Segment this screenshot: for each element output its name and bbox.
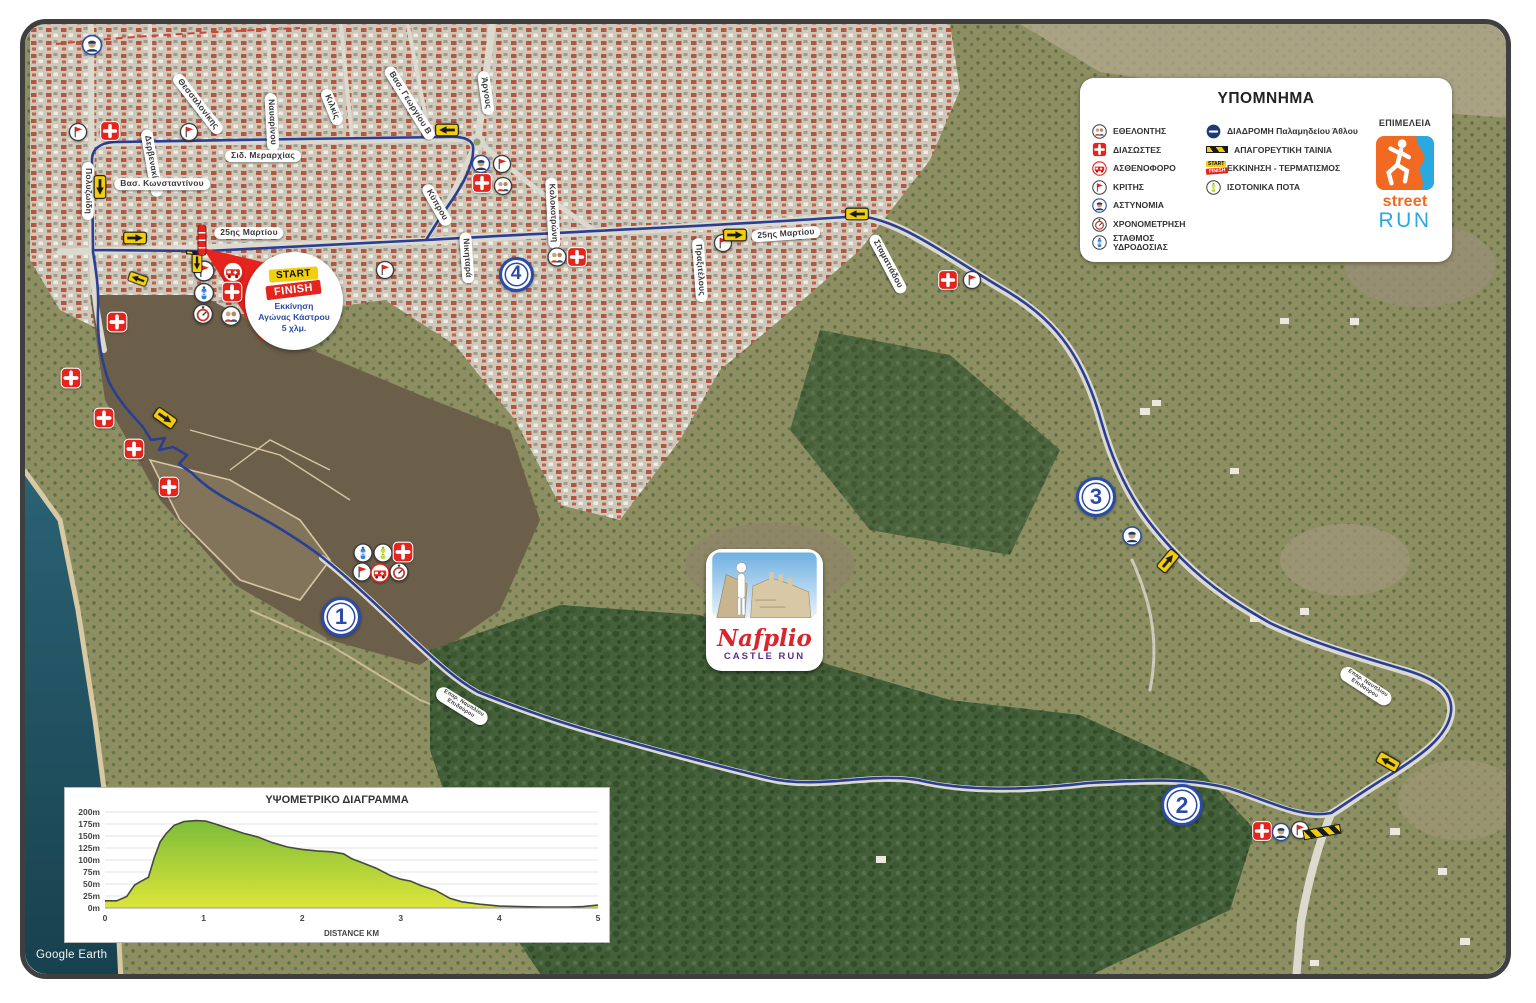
legend-item-label: ΑΣΤΥΝΟΜΙΑ [1113,201,1164,210]
legend-title: ΥΠΟΜΝΗΜΑ [1080,90,1452,108]
legend-item-label: ΚΡΙΤΗΣ [1113,183,1144,192]
svg-text:25m: 25m [83,891,100,901]
legend-item-label: ΑΠΑΓΟΡΕΥΤΙΚΗ ΤΑΙΝΙΑ [1234,146,1332,155]
castle-illustration [706,549,823,621]
legend-item: ΑΣΘΕΝΟΦΟΡΟ [1092,159,1204,178]
legend-item: ΚΡΙΤΗΣ [1092,178,1204,197]
legend-item-label: ΑΣΘΕΝΟΦΟΡΟ [1113,164,1176,173]
svg-text:ΥΨΟΜΕΤΡΙΚΟ ΔΙΑΓΡΑΜΜΑ: ΥΨΟΜΕΤΡΙΚΟ ΔΙΑΓΡΑΜΜΑ [265,794,408,806]
legend-item: ΣΤΑΘΜΟΣ ΥΔΡΟΔΟΣΙΑΣ [1092,234,1204,253]
legend-item-label: ΣΤΑΘΜΟΣ ΥΔΡΟΔΟΣΙΑΣ [1113,234,1204,251]
legend-item: ΔΙΑΣΩΣΤΕΣ [1092,141,1204,160]
water-icon [1092,235,1107,250]
tape-icon [1206,146,1228,153]
street-run-logo-text2: RUN [1366,210,1444,232]
cross-icon [1092,142,1107,157]
legend-item: ΙΣΟΤΟΝΙΚΑ ΠΟΤΑ [1206,178,1364,197]
legend-item-label: ΕΘΕΛΟΝΤΗΣ [1113,127,1166,136]
finish-chip: FINISH [266,280,322,301]
event-logo: Nafplio CASTLE RUN [706,549,823,671]
legend-item-label: ΕΚΚΙΝΗΣΗ - ΤΕΡΜΑΤΙΣΜΟΣ [1227,164,1340,173]
legend-panel: ΥΠΟΜΝΗΜΑ ΕΘΕΛΟΝΤΗΣΔΙΑΣΩΣΤΕΣΑΣΘΕΝΟΦΟΡΟΚΡΙ… [1080,78,1452,262]
start-finish-callout: START FINISH ΕκκίνησηΑγώνας Κάστρου5 χλμ… [245,252,343,350]
svg-text:50m: 50m [83,879,100,889]
km-marker-4: 4 [499,257,534,292]
km-marker-2: 2 [1161,784,1203,826]
google-earth-watermark: Google Earth [36,949,107,961]
svg-text:5: 5 [596,913,601,923]
street-run-logo-icon [1376,136,1434,190]
street-run-logo-text1: street [1366,194,1444,210]
event-logo-title: Nafplio [706,627,823,650]
legend-item: ΑΠΑΓΟΡΕΥΤΙΚΗ ΤΑΙΝΙΑ [1206,141,1364,160]
svg-text:0: 0 [103,913,108,923]
volunteers-icon [1092,124,1107,139]
sf-icon: STARTFINISH [1206,161,1221,176]
route-icon [1206,124,1221,139]
legend-item: ΔΙΑΔΡΟΜΗ Παλαμηδείου Άθλου [1206,122,1364,141]
police-icon [1092,198,1107,213]
svg-text:3: 3 [398,913,403,923]
isotonic-icon [1206,180,1221,195]
timer-icon [1092,217,1107,232]
km-marker-1: 1 [321,597,361,637]
legend-column-1: ΕΘΕΛΟΝΤΗΣΔΙΑΣΩΣΤΕΣΑΣΘΕΝΟΦΟΡΟΚΡΙΤΗΣΑΣΤΥΝΟ… [1092,122,1204,252]
svg-text:200m: 200m [78,807,100,817]
legend-item: ΑΣΤΥΝΟΜΙΑ [1092,196,1204,215]
km-marker-3: 3 [1076,477,1116,517]
legend-item-label: ΔΙΑΣΩΣΤΕΣ [1113,146,1161,155]
svg-text:2: 2 [300,913,305,923]
course-map: ΠολυζωίδηΔερβενακίωνΘεσσαλονίκηςΝαυαρίνο… [25,24,1506,974]
start-callout-text: ΕκκίνησηΑγώνας Κάστρου5 χλμ. [258,301,329,333]
svg-text:1: 1 [201,913,206,923]
svg-text:175m: 175m [78,819,100,829]
epimeleia-label: ΕΠΙΜΕΛΕΙΑ [1366,118,1444,128]
legend-item: ΕΘΕΛΟΝΤΗΣ [1092,122,1204,141]
svg-text:100m: 100m [78,855,100,865]
legend-item: ΧΡΟΝΟΜΕΤΡΗΣΗ [1092,215,1204,234]
svg-text:125m: 125m [78,843,100,853]
elevation-chart-panel: ΥΨΟΜΕΤΡΙΚΟ ΔΙΑΓΡΑΜΜΑ0m25m50m75m100m125m1… [64,787,610,943]
legend-item-label: ΧΡΟΝΟΜΕΤΡΗΣΗ [1113,220,1185,229]
svg-text:0m: 0m [88,903,101,913]
legend-item-label: ΙΣΟΤΟΝΙΚΑ ΠΟΤΑ [1227,183,1300,192]
svg-text:75m: 75m [83,867,100,877]
legend-credits: ΕΠΙΜΕΛΕΙΑ street RUN [1366,118,1444,232]
event-logo-subtitle: CASTLE RUN [706,651,823,662]
elevation-chart: ΥΨΟΜΕΤΡΙΚΟ ΔΙΑΓΡΑΜΜΑ0m25m50m75m100m125m1… [65,788,609,942]
legend-item-label: ΔΙΑΔΡΟΜΗ Παλαμηδείου Άθλου [1227,127,1358,136]
svg-text:150m: 150m [78,831,100,841]
legend-item: STARTFINISHΕΚΚΙΝΗΣΗ - ΤΕΡΜΑΤΙΣΜΟΣ [1206,159,1364,178]
svg-text:DISTANCE KM: DISTANCE KM [324,929,379,938]
svg-text:4: 4 [497,913,502,923]
ambulance-icon [1092,161,1107,176]
flag-icon [1092,180,1107,195]
legend-column-2: ΔΙΑΔΡΟΜΗ Παλαμηδείου ΆθλουΑΠΑΓΟΡΕΥΤΙΚΗ Τ… [1206,122,1364,196]
